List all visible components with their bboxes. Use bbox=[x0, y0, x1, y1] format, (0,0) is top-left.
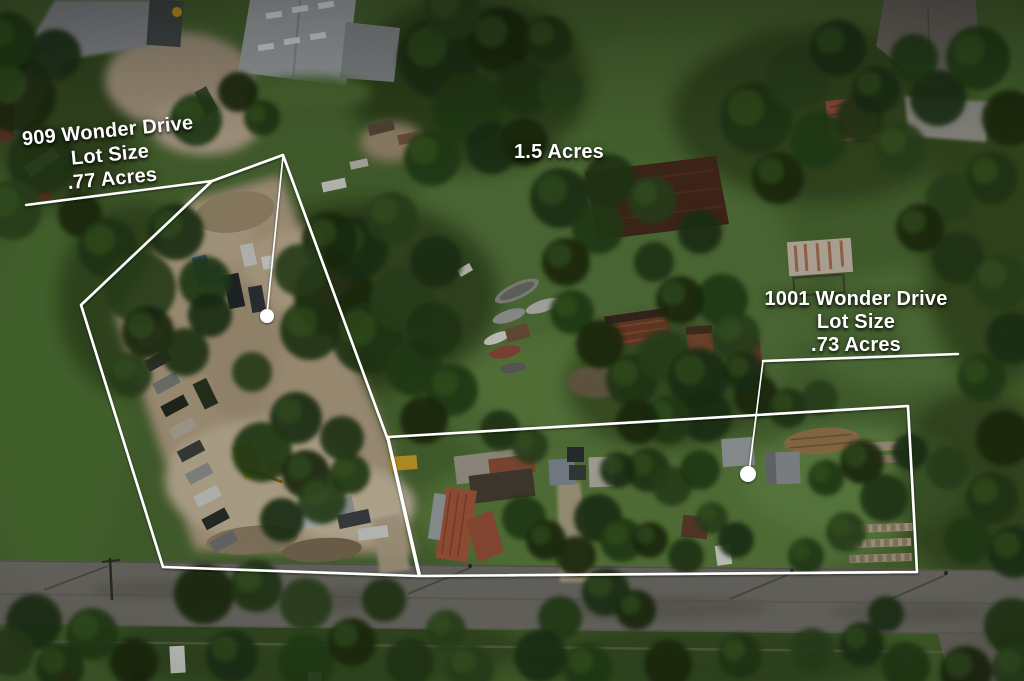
lot-1001-marker-dot bbox=[740, 466, 756, 482]
lot-1001-address-label: 1001 Wonder Drive bbox=[760, 288, 952, 311]
field-annotation: 1.5 Acres bbox=[503, 141, 615, 163]
aerial-photo: 909 Wonder Drive Lot Size .77 Acres 1.5 … bbox=[0, 0, 1024, 681]
lot-909-marker-dot bbox=[260, 309, 274, 323]
lot-1001-annotation: 1001 Wonder Drive Lot Size .73 Acres bbox=[760, 288, 952, 357]
lot-1001-size-label: Lot Size bbox=[760, 311, 952, 334]
lot-1001-acreage-label: .73 Acres bbox=[760, 334, 952, 357]
field-acreage-label: 1.5 Acres bbox=[503, 141, 615, 163]
